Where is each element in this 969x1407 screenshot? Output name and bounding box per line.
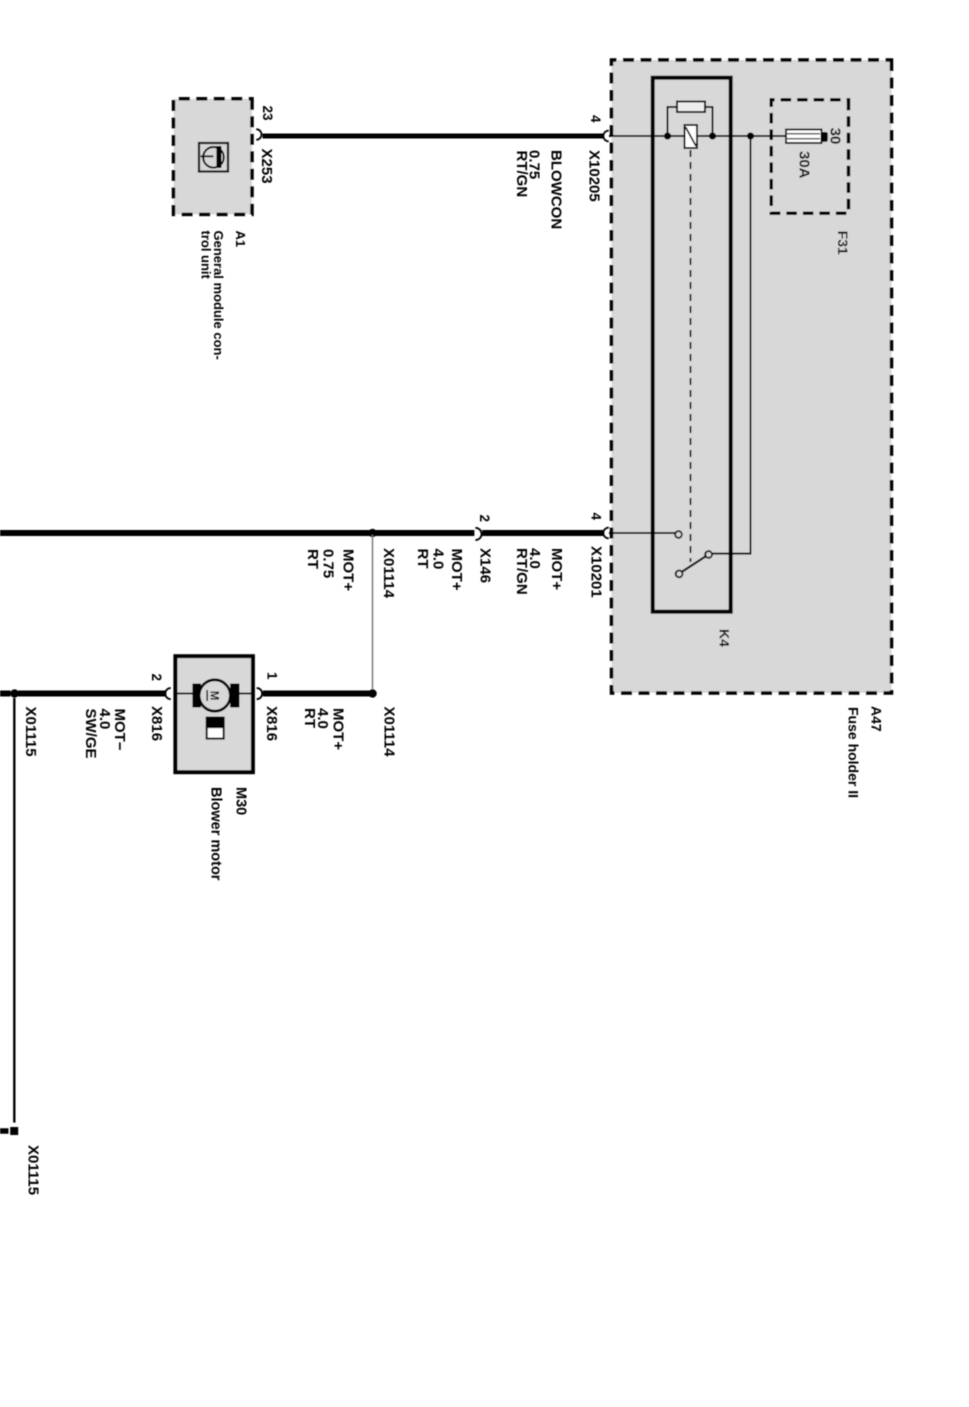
svg-text:X01115: X01115 (22, 707, 39, 757)
svg-text:M: M (207, 691, 219, 701)
svg-text:MOT+: MOT+ (548, 548, 565, 590)
svg-text:X01114: X01114 (380, 548, 397, 599)
svg-text:MOT+: MOT+ (330, 708, 347, 750)
svg-text:BLOWCON: BLOWCON (548, 150, 565, 229)
svg-text:MOT+: MOT+ (340, 549, 357, 591)
svg-text:4.0: 4.0 (430, 549, 447, 570)
svg-text:RT: RT (301, 708, 318, 728)
svg-text:2: 2 (149, 673, 164, 681)
svg-text:X816: X816 (148, 706, 165, 741)
svg-text:X01115: X01115 (25, 1145, 42, 1195)
svg-text:4: 4 (588, 115, 603, 123)
svg-text:MOT+: MOT+ (448, 549, 465, 591)
svg-text:X10205: X10205 (586, 150, 603, 202)
svg-text:SW/GE: SW/GE (82, 709, 99, 759)
svg-text:A1: A1 (233, 231, 248, 248)
svg-text:F31: F31 (835, 231, 851, 255)
svg-text:K4: K4 (717, 629, 733, 647)
svg-text:M30: M30 (232, 787, 248, 815)
svg-text:1: 1 (264, 672, 279, 680)
svg-text:23: 23 (260, 105, 275, 121)
svg-text:X253: X253 (258, 149, 275, 184)
svg-text:RT/GN: RT/GN (513, 151, 530, 198)
svg-text:RT: RT (414, 549, 431, 569)
svg-text:X146: X146 (476, 548, 493, 583)
svg-text:Fuse holder II: Fuse holder II (846, 707, 862, 798)
svg-text:30A: 30A (796, 151, 813, 179)
svg-text:0.75: 0.75 (320, 549, 337, 578)
svg-text:Blower motor: Blower motor (208, 787, 224, 881)
svg-text:X01114: X01114 (381, 707, 398, 758)
svg-text:4: 4 (589, 512, 604, 520)
svg-text:trol unit: trol unit (198, 231, 213, 280)
svg-text:RT/GN: RT/GN (513, 548, 530, 595)
svg-text:A47: A47 (868, 706, 884, 732)
svg-text:30: 30 (826, 128, 843, 145)
svg-text:X816: X816 (263, 706, 280, 741)
svg-text:RT: RT (304, 549, 321, 569)
svg-text:X10201: X10201 (587, 546, 604, 598)
svg-text:2: 2 (477, 514, 492, 522)
